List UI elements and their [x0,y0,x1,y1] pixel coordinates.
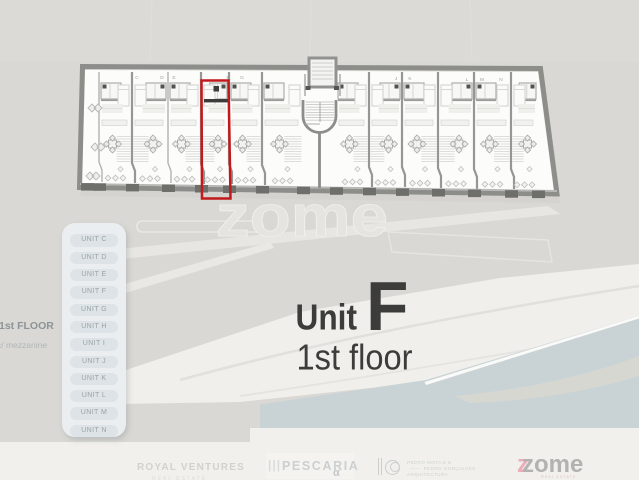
svg-text:1st floor: 1st floor [297,337,413,378]
svg-text:Unit: Unit [296,297,358,338]
svg-text:M: M [480,77,484,83]
svg-text:L: L [466,77,469,83]
svg-text:E: E [172,75,175,81]
svg-text:G: G [240,75,244,81]
svg-text:F: F [366,267,408,345]
svg-text:C: C [135,75,139,81]
svg-text:D: D [160,75,164,81]
svg-text:N: N [499,77,503,83]
